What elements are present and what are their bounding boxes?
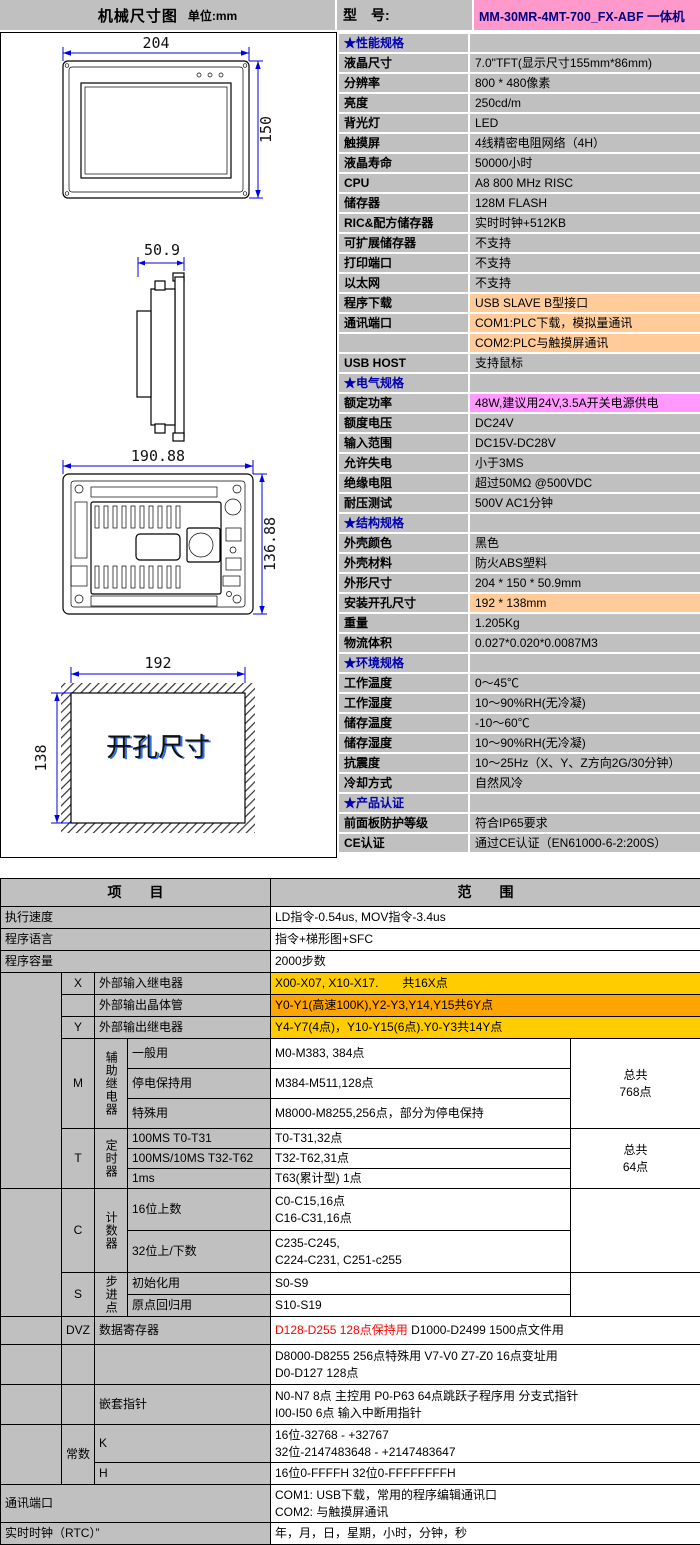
spec-value: 1.205Kg — [470, 614, 700, 632]
spec-value: 黑色 — [470, 534, 700, 552]
spec-label: 工作湿度 — [339, 694, 468, 712]
spec-value: 支持鼠标 — [470, 354, 700, 372]
row-label: 特殊用 — [128, 1099, 271, 1129]
row-label: 一般用 — [128, 1039, 271, 1069]
front-width-dim: 204 — [142, 34, 169, 52]
spec-label: 冷却方式 — [339, 774, 468, 792]
spec-value: 10～90%RH(无冷凝) — [470, 734, 700, 752]
device-letter: T — [62, 1129, 95, 1189]
spec-value: 不支持 — [470, 234, 700, 252]
spec-label: 液晶尺寸 — [339, 54, 468, 72]
row-value: N0-N7 8点 主控用 P0-P63 64点跳跃子程序用 分支式指针 I00-… — [271, 1385, 700, 1425]
device-letter: Y — [62, 1017, 95, 1039]
row-label: 100MS T0-T31 — [128, 1129, 271, 1149]
row-label: 32位上/下数 — [128, 1231, 271, 1273]
spec-label: 分辨率 — [339, 74, 468, 92]
row-value: Y4-Y7(4点)，Y10-Y15(6点).Y0-Y3共14Y点 — [271, 1017, 700, 1039]
spacer-cell — [1, 1345, 62, 1385]
row-label: 1ms — [128, 1169, 271, 1189]
front-view-drawing: 204 150 — [1, 33, 336, 233]
spec-value: -10～60℃ — [470, 714, 700, 732]
spec-label: 触摸屏 — [339, 134, 468, 152]
side-depth-dim: 50.9 — [144, 241, 180, 259]
row-value: LD指令-0.54us, MOV指令-3.4us — [271, 907, 700, 929]
spec-value: A8 800 MHz RISC — [470, 174, 700, 192]
row-label: 通讯端口 — [1, 1485, 271, 1523]
side-view-drawing: 50.9 — [1, 233, 336, 448]
row-value: 16位0-FFFFH 32位0-FFFFFFFFH — [271, 1463, 700, 1485]
spec-value: 48W,建议用24V,3.5A开关电源供电 — [470, 394, 700, 412]
row-value: X00-X07, X10-X17. 共16X点 — [271, 973, 700, 995]
row-label: 外部输入继电器 — [95, 973, 271, 995]
row-value: Y0-Y1(高速100K),Y2-Y3,Y14,Y15共6Y点 — [271, 995, 700, 1017]
spec-value: 0～45℃ — [470, 674, 700, 692]
spec-label: 额度电压 — [339, 414, 468, 432]
spec-value: 204 * 150 * 50.9mm — [470, 574, 700, 592]
model-label: 型 号: — [337, 0, 474, 30]
spec-label: 液晶寿命 — [339, 154, 468, 172]
row-label: 数据寄存器 — [95, 1317, 271, 1345]
spec-value: COM1:PLC下载，模拟量通讯 — [470, 314, 700, 332]
spec-label: 抗震度 — [339, 754, 468, 772]
cutout-drawing: 192 开孔尺寸 开孔尺寸 138 — [1, 653, 336, 853]
row-value: M8000-M8255,256点，部分为停电保持 — [271, 1099, 571, 1129]
spec-label: 物流体积 — [339, 634, 468, 652]
spec-value: 800 * 480像素 — [470, 74, 700, 92]
row-value: C0-C15,16点 C16-C31,16点 — [271, 1189, 571, 1231]
row-value: T63(累计型) 1点 — [271, 1169, 571, 1189]
spec-label — [339, 334, 468, 352]
spec-label: 可扩展储存器 — [339, 234, 468, 252]
device-letter: 常数 — [62, 1425, 95, 1485]
row-label: 初始化用 — [128, 1273, 271, 1295]
spec-value: 自然风冷 — [470, 774, 700, 792]
mechanical-title-cell: 机械尺寸图 单位:mm — [0, 0, 337, 30]
unit-label: 单位:mm — [188, 7, 237, 24]
row-value: 指令+梯形图+SFC — [271, 929, 700, 951]
rear-height-dim: 136.88 — [261, 517, 279, 571]
rear-view-drawing: 190.88 — [1, 448, 336, 653]
row-label: 外部输出晶体管 — [95, 995, 271, 1017]
row-value: C235-C245, C224-C231, C251-c255 — [271, 1231, 571, 1273]
spec-value: 128M FLASH — [470, 194, 700, 212]
spec-value: 不支持 — [470, 254, 700, 272]
total-cell: 总共 64点 — [571, 1129, 700, 1189]
bottom-header-range: 范 围 — [271, 879, 700, 907]
top-header: 机械尺寸图 单位:mm 型 号: MM-30MR-4MT-700_FX-ABF … — [0, 0, 700, 32]
spacer-cell — [1, 1425, 62, 1485]
rear-width-dim: 190.88 — [131, 448, 185, 465]
spec-value: DC24V — [470, 414, 700, 432]
row-value: COM1: USB下载，常用的程序编辑通讯口 COM2: 与触摸屏通讯 — [271, 1485, 700, 1523]
bt-text-segment: D1000-D2499 1500点文件用 — [408, 1323, 564, 1337]
drawings-panel: 204 150 50.9 — [0, 32, 337, 858]
total-cell — [571, 1273, 700, 1317]
spec-value — [470, 374, 700, 392]
cutout-height-dim: 138 — [32, 744, 50, 771]
row-value: T0-T31,32点 — [271, 1129, 571, 1149]
spec-label: 亮度 — [339, 94, 468, 112]
spec-value: 超过50MΩ @500VDC — [470, 474, 700, 492]
front-height-dim: 150 — [257, 116, 275, 143]
spec-value — [470, 514, 700, 532]
spec-label: 背光灯 — [339, 114, 468, 132]
spec-label: 绝缘电阻 — [339, 474, 468, 492]
device-group-label: 定时器 — [95, 1129, 128, 1189]
spec-value: 250cd/m — [470, 94, 700, 112]
spacer-cell — [1, 1317, 62, 1345]
spec-label: 耐压测试 — [339, 494, 468, 512]
row-label: 外部输出继电器 — [95, 1017, 271, 1039]
cutout-label: 开孔尺寸 — [106, 732, 210, 762]
spacer-cell — [1, 1189, 62, 1317]
row-value: D8000-D8255 256点特殊用 V7-V0 Z7-Z0 16点变址用 D… — [271, 1345, 700, 1385]
spec-label: 允许失电 — [339, 454, 468, 472]
spec-value: 10～90%RH(无冷凝) — [470, 694, 700, 712]
row-label: K — [95, 1425, 271, 1463]
mechanical-title: 机械尺寸图 — [98, 5, 178, 26]
total-cell — [571, 1189, 700, 1273]
row-value: D128-D255 128点保持用 D1000-D2499 1500点文件用 — [271, 1317, 700, 1345]
row-label: 嵌套指针 — [95, 1385, 271, 1425]
spec-label: 输入范围 — [339, 434, 468, 452]
device-group-label: 辅助继电器 — [95, 1039, 128, 1129]
spec-section-label: ★产品认证 — [339, 794, 468, 812]
device-letter: C — [62, 1189, 95, 1273]
spec-value: 小于3MS — [470, 454, 700, 472]
spec-value: 符合IP65要求 — [470, 814, 700, 832]
bottom-table: 项 目范 围执行速度LD指令-0.54us, MOV指令-3.4us程序语言指令… — [0, 878, 700, 1545]
spec-value: COM2:PLC与触摸屏通讯 — [470, 334, 700, 352]
spec-value: 4线精密电阻网络（4H） — [470, 134, 700, 152]
spec-value: 实时时钟+512KB — [470, 214, 700, 232]
row-label: 程序语言 — [1, 929, 271, 951]
spec-label: 额定功率 — [339, 394, 468, 412]
row-value: M0-M383, 384点 — [271, 1039, 571, 1069]
row-label: 实时时钟（RTC）” — [1, 1523, 271, 1545]
spec-label: CPU — [339, 174, 468, 192]
device-letter: DVZ — [62, 1317, 95, 1345]
device-letter — [62, 995, 95, 1017]
spec-table: ★性能规格液晶尺寸7.0"TFT(显示尺寸155mm*86mm)分辨率800 *… — [337, 32, 700, 852]
spec-label: 通讯端口 — [339, 314, 468, 332]
spec-label: 储存器 — [339, 194, 468, 212]
device-group-label: 步进点 — [95, 1273, 128, 1317]
spec-value: 7.0"TFT(显示尺寸155mm*86mm) — [470, 54, 700, 72]
row-label: 100MS/10MS T32-T62 — [128, 1149, 271, 1169]
spec-label: 外形尺寸 — [339, 574, 468, 592]
row-value: S0-S9 — [271, 1273, 571, 1295]
row-value: 2000步数 — [271, 951, 700, 973]
spec-value: 通过CE认证（EN61000-6-2:200S） — [470, 834, 700, 852]
spec-label: 程序下载 — [339, 294, 468, 312]
device-letter — [62, 1385, 95, 1425]
row-label — [95, 1345, 271, 1385]
spec-label: USB HOST — [339, 354, 468, 372]
spec-value: DC15V-DC28V — [470, 434, 700, 452]
row-label: 16位上数 — [128, 1189, 271, 1231]
spec-value — [470, 34, 700, 52]
spec-value: 500V AC1分钟 — [470, 494, 700, 512]
spec-value: 0.027*0.020*0.0087M3 — [470, 634, 700, 652]
spec-value: 192 * 138mm — [470, 594, 700, 612]
spec-section-label: ★电气规格 — [339, 374, 468, 392]
device-group-label: 计数器 — [95, 1189, 128, 1273]
spec-label: RIC&配方储存器 — [339, 214, 468, 232]
spec-value: 不支持 — [470, 274, 700, 292]
spec-section-label: ★结构规格 — [339, 514, 468, 532]
row-value: 年，月，日，星期，小时，分钟，秒 — [271, 1523, 700, 1545]
device-letter: S — [62, 1273, 95, 1317]
row-label: 程序容量 — [1, 951, 271, 973]
row-value: T32-T62,31点 — [271, 1149, 571, 1169]
row-label: 原点回归用 — [128, 1295, 271, 1317]
device-letter: X — [62, 973, 95, 995]
spec-label: 储存温度 — [339, 714, 468, 732]
bt-text-segment: D128-D255 128点保持用 — [275, 1323, 408, 1337]
spacer-cell — [1, 973, 62, 1189]
spec-section-label: ★性能规格 — [339, 34, 468, 52]
spec-label: 重量 — [339, 614, 468, 632]
row-value: M384-M511,128点 — [271, 1069, 571, 1099]
model-value: MM-30MR-4MT-700_FX-ABF 一体机 — [474, 0, 700, 30]
row-value: 16位-32768 - +32767 32位-2147483648 - +214… — [271, 1425, 700, 1463]
spec-label: 外壳颜色 — [339, 534, 468, 552]
spec-label: 外壳材料 — [339, 554, 468, 572]
spec-value — [470, 794, 700, 812]
device-letter: M — [62, 1039, 95, 1129]
spec-value: 防火ABS塑料 — [470, 554, 700, 572]
spacer-cell — [1, 1385, 62, 1425]
row-label: 停电保持用 — [128, 1069, 271, 1099]
spec-label: 以太网 — [339, 274, 468, 292]
spec-label: 打印端口 — [339, 254, 468, 272]
top-section: 204 150 50.9 — [0, 32, 700, 858]
spec-section-label: ★环境规格 — [339, 654, 468, 672]
spec-value: LED — [470, 114, 700, 132]
bottom-header-item: 项 目 — [1, 879, 271, 907]
device-letter — [62, 1345, 95, 1385]
spec-label: 安装开孔尺寸 — [339, 594, 468, 612]
row-value: S10-S19 — [271, 1295, 571, 1317]
row-label: H — [95, 1463, 271, 1485]
spec-label: 储存湿度 — [339, 734, 468, 752]
spec-value: 50000小时 — [470, 154, 700, 172]
spec-label: 工作温度 — [339, 674, 468, 692]
spec-label: 前面板防护等级 — [339, 814, 468, 832]
spec-value: USB SLAVE B型接口 — [470, 294, 700, 312]
spec-value: 10～25Hz（X、Y、Z方向2G/30分钟） — [470, 754, 700, 772]
spec-value — [470, 654, 700, 672]
spec-label: CE认证 — [339, 834, 468, 852]
total-cell: 总共 768点 — [571, 1039, 700, 1129]
row-label: 执行速度 — [1, 907, 271, 929]
cutout-width-dim: 192 — [144, 654, 171, 672]
